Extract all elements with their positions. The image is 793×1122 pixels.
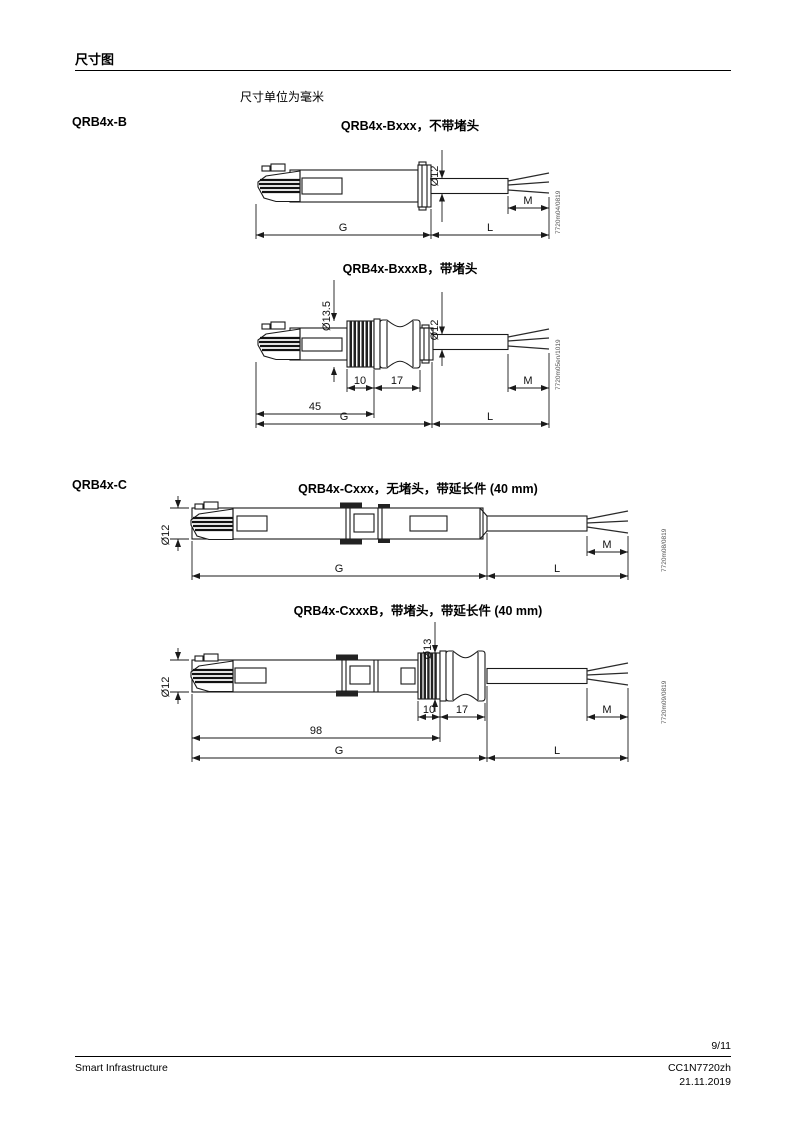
heading-rule xyxy=(75,70,731,71)
dim-label-l: L xyxy=(487,411,493,423)
dim-label-g: G xyxy=(340,411,349,423)
dimension-drawing-qrb4x-bxxxb: Ø13.5 Ø12 10 17 M 45 xyxy=(250,270,570,432)
dimension-drawing-qrb4x-cxxxb: Ø12 Ø13 10 17 M 98 xyxy=(158,616,678,764)
dim-label-l: L xyxy=(487,222,493,234)
footer-rule xyxy=(75,1056,731,1057)
dim-label-m: M xyxy=(523,195,532,207)
dim-label-dia12: Ø12 xyxy=(429,166,441,187)
dim-label-l: L xyxy=(554,563,560,575)
footer-doc-id: CC1N7720zh xyxy=(431,1062,731,1074)
wires xyxy=(587,663,628,685)
cable xyxy=(487,516,587,531)
dim-label-g: G xyxy=(335,745,344,757)
dim-label-dia12: Ø12 xyxy=(160,525,172,546)
wires xyxy=(508,173,549,193)
page-heading: 尺寸图 xyxy=(75,49,114,68)
dim-label-dia12: Ø12 xyxy=(429,320,441,341)
dimension-drawing-qrb4x-cxxx: Ø12 M G L 7720m08/0819 xyxy=(158,492,678,588)
dim-label-m: M xyxy=(602,704,611,716)
dim-label-dia13: Ø13 xyxy=(422,639,434,660)
sensor-body xyxy=(258,322,347,360)
dim-label-m: M xyxy=(602,539,611,551)
dim-label-10: 10 xyxy=(423,704,435,716)
plug xyxy=(347,319,433,369)
wires xyxy=(587,511,628,533)
dim-label-98: 98 xyxy=(310,725,322,737)
drawing-ref-number: 7720m05en/1019 xyxy=(555,339,562,390)
dim-label-dia13-5: Ø13.5 xyxy=(321,301,333,331)
dim-label-17: 17 xyxy=(456,704,468,716)
dim-label-g: G xyxy=(335,563,344,575)
dim-label-17: 17 xyxy=(391,375,403,387)
wires xyxy=(508,329,549,349)
sensor-body xyxy=(191,654,418,697)
dim-label-10: 10 xyxy=(354,375,366,387)
model-label-qrb4x-c: QRB4x-C xyxy=(72,478,127,492)
sensor-body xyxy=(191,502,487,545)
drawing-ref-number: 7720m09/0819 xyxy=(661,680,668,724)
dim-label-dia12: Ø12 xyxy=(160,677,172,698)
dim-label-g: G xyxy=(339,222,348,234)
datasheet-page: 尺寸图 尺寸单位为毫米 QRB4x-B QRB4x-Bxxx，不带堵头 xyxy=(0,0,793,1122)
dim-label-l: L xyxy=(554,745,560,757)
cable xyxy=(431,179,508,194)
drawing-ref-number: 7720m04/0819 xyxy=(555,190,562,234)
dim-label-45: 45 xyxy=(309,401,321,413)
page-number: 9/11 xyxy=(431,1040,731,1052)
footer-company: Smart Infrastructure xyxy=(75,1062,168,1074)
footer-date: 21.11.2019 xyxy=(431,1076,731,1088)
model-label-qrb4x-b: QRB4x-B xyxy=(72,115,127,129)
unit-note: 尺寸单位为毫米 xyxy=(240,88,324,105)
cable xyxy=(487,669,587,684)
sensor-body xyxy=(258,162,431,210)
cable xyxy=(433,335,508,350)
drawing-ref-number: 7720m08/0819 xyxy=(661,528,668,572)
drawing1-title: QRB4x-Bxxx，不带堵头 xyxy=(250,115,570,134)
dimension-drawing-qrb4x-bxxx: Ø12 M G L 7720m04/0819 xyxy=(250,134,570,244)
dim-label-m: M xyxy=(523,375,532,387)
